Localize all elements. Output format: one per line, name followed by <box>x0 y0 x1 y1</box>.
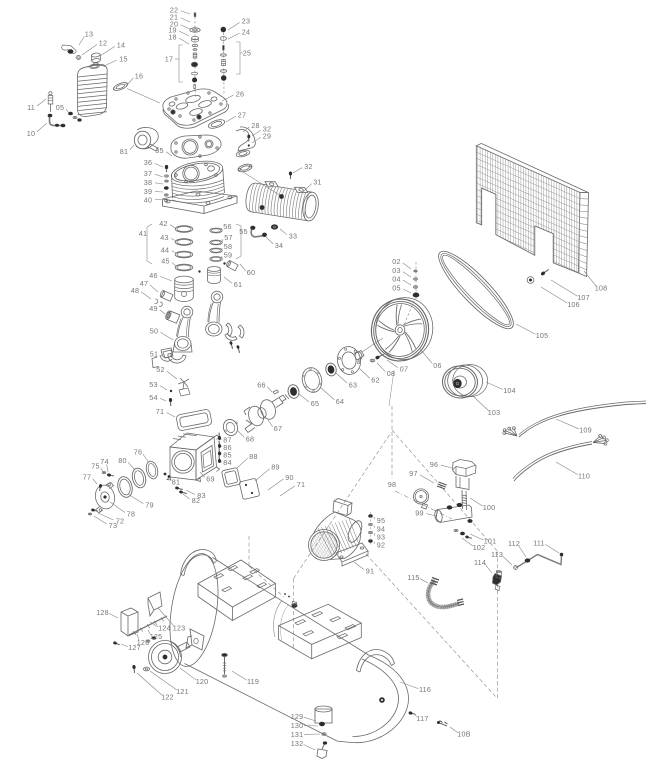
svg-text:34: 34 <box>275 241 283 250</box>
svg-text:84: 84 <box>223 458 231 467</box>
svg-text:99: 99 <box>415 509 423 518</box>
svg-text:62: 62 <box>371 376 379 385</box>
svg-text:97: 97 <box>409 469 417 478</box>
svg-text:105: 105 <box>536 331 549 340</box>
svg-text:43: 43 <box>160 233 168 242</box>
svg-text:71: 71 <box>156 407 164 416</box>
svg-text:27: 27 <box>238 111 246 120</box>
svg-text:110: 110 <box>578 472 590 481</box>
svg-text:67: 67 <box>274 424 282 433</box>
svg-text:10: 10 <box>27 129 35 138</box>
svg-text:10B: 10B <box>457 730 470 739</box>
svg-text:38: 38 <box>144 178 152 187</box>
svg-text:120: 120 <box>196 677 209 686</box>
svg-text:81: 81 <box>120 147 128 156</box>
svg-text:102: 102 <box>473 543 486 552</box>
svg-text:96: 96 <box>430 460 438 469</box>
svg-text:05: 05 <box>392 284 400 293</box>
svg-text:103: 103 <box>488 408 501 417</box>
svg-text:71: 71 <box>297 480 305 489</box>
svg-text:65: 65 <box>311 399 319 408</box>
svg-text:127: 127 <box>128 643 141 652</box>
svg-text:116: 116 <box>419 685 431 694</box>
svg-text:29: 29 <box>263 132 271 141</box>
svg-text:57: 57 <box>224 233 232 242</box>
svg-text:73: 73 <box>109 521 117 530</box>
svg-text:45: 45 <box>161 257 169 266</box>
svg-text:32: 32 <box>304 162 312 171</box>
svg-text:75: 75 <box>91 462 99 471</box>
svg-text:130: 130 <box>291 721 304 730</box>
svg-text:123: 123 <box>173 624 186 633</box>
svg-text:113: 113 <box>491 550 503 559</box>
svg-text:122: 122 <box>161 693 174 702</box>
svg-text:106: 106 <box>567 300 580 309</box>
svg-text:25: 25 <box>243 49 251 58</box>
svg-text:53: 53 <box>149 380 157 389</box>
svg-text:89: 89 <box>271 463 279 472</box>
svg-text:37: 37 <box>144 169 152 178</box>
svg-text:78: 78 <box>127 510 135 519</box>
svg-text:23: 23 <box>242 17 250 26</box>
svg-text:31: 31 <box>313 178 321 187</box>
svg-text:64: 64 <box>336 397 344 406</box>
svg-text:35: 35 <box>155 146 163 155</box>
svg-text:50: 50 <box>150 327 158 336</box>
svg-text:24: 24 <box>242 28 250 37</box>
svg-text:56: 56 <box>223 222 231 231</box>
svg-text:47: 47 <box>140 279 148 288</box>
svg-text:46: 46 <box>149 271 157 280</box>
svg-text:66: 66 <box>257 381 265 390</box>
svg-text:13: 13 <box>85 30 93 39</box>
svg-text:69: 69 <box>206 475 214 484</box>
svg-text:114: 114 <box>474 558 486 567</box>
svg-text:49: 49 <box>149 304 157 313</box>
svg-text:14: 14 <box>117 41 125 50</box>
svg-text:05: 05 <box>56 103 64 112</box>
svg-text:60: 60 <box>247 268 255 277</box>
svg-text:82: 82 <box>192 496 200 505</box>
svg-text:33: 33 <box>289 232 297 241</box>
svg-text:16: 16 <box>135 72 143 81</box>
svg-text:129: 129 <box>291 712 304 721</box>
svg-text:48: 48 <box>131 286 139 295</box>
svg-text:26: 26 <box>236 90 244 99</box>
svg-text:07: 07 <box>400 365 408 374</box>
svg-text:12: 12 <box>99 39 107 48</box>
svg-text:42: 42 <box>159 219 167 228</box>
svg-text:117: 117 <box>416 714 428 723</box>
svg-text:18: 18 <box>168 33 176 42</box>
svg-text:121: 121 <box>176 687 189 696</box>
svg-text:77: 77 <box>83 473 91 482</box>
svg-text:109: 109 <box>579 426 592 435</box>
svg-text:40: 40 <box>144 196 152 205</box>
svg-text:68: 68 <box>246 435 254 444</box>
svg-text:128: 128 <box>96 608 109 617</box>
svg-text:88: 88 <box>249 452 257 461</box>
svg-text:125: 125 <box>150 632 163 641</box>
svg-text:101: 101 <box>484 537 497 546</box>
svg-text:74: 74 <box>100 457 108 466</box>
svg-text:17: 17 <box>165 55 173 64</box>
svg-text:04: 04 <box>392 275 400 284</box>
svg-text:132: 132 <box>291 739 304 748</box>
svg-text:36: 36 <box>144 158 152 167</box>
svg-text:79: 79 <box>145 501 153 510</box>
svg-text:104: 104 <box>503 386 516 395</box>
svg-text:63: 63 <box>349 381 357 390</box>
svg-text:100: 100 <box>483 503 496 512</box>
svg-text:119: 119 <box>247 677 259 686</box>
svg-text:111: 111 <box>533 539 545 548</box>
svg-text:44: 44 <box>161 246 169 255</box>
svg-text:55: 55 <box>239 227 247 236</box>
svg-text:81: 81 <box>172 478 180 487</box>
svg-text:06: 06 <box>433 361 441 370</box>
svg-text:41: 41 <box>139 229 147 238</box>
svg-text:90: 90 <box>285 473 293 482</box>
svg-text:59: 59 <box>224 251 232 260</box>
svg-text:54: 54 <box>149 393 157 402</box>
svg-text:112: 112 <box>508 539 520 548</box>
svg-text:02: 02 <box>392 257 400 266</box>
svg-text:51: 51 <box>150 350 158 359</box>
svg-text:115: 115 <box>407 573 419 582</box>
svg-text:91: 91 <box>366 567 374 576</box>
svg-text:92: 92 <box>377 541 385 550</box>
svg-text:131: 131 <box>291 730 304 739</box>
svg-text:15: 15 <box>119 55 127 64</box>
svg-text:108: 108 <box>595 284 608 293</box>
svg-text:80: 80 <box>118 456 126 465</box>
svg-text:98: 98 <box>388 480 396 489</box>
svg-text:28: 28 <box>251 121 259 130</box>
svg-text:11: 11 <box>27 103 35 112</box>
svg-text:61: 61 <box>234 280 242 289</box>
svg-text:76: 76 <box>134 448 142 457</box>
svg-text:52: 52 <box>156 365 164 374</box>
